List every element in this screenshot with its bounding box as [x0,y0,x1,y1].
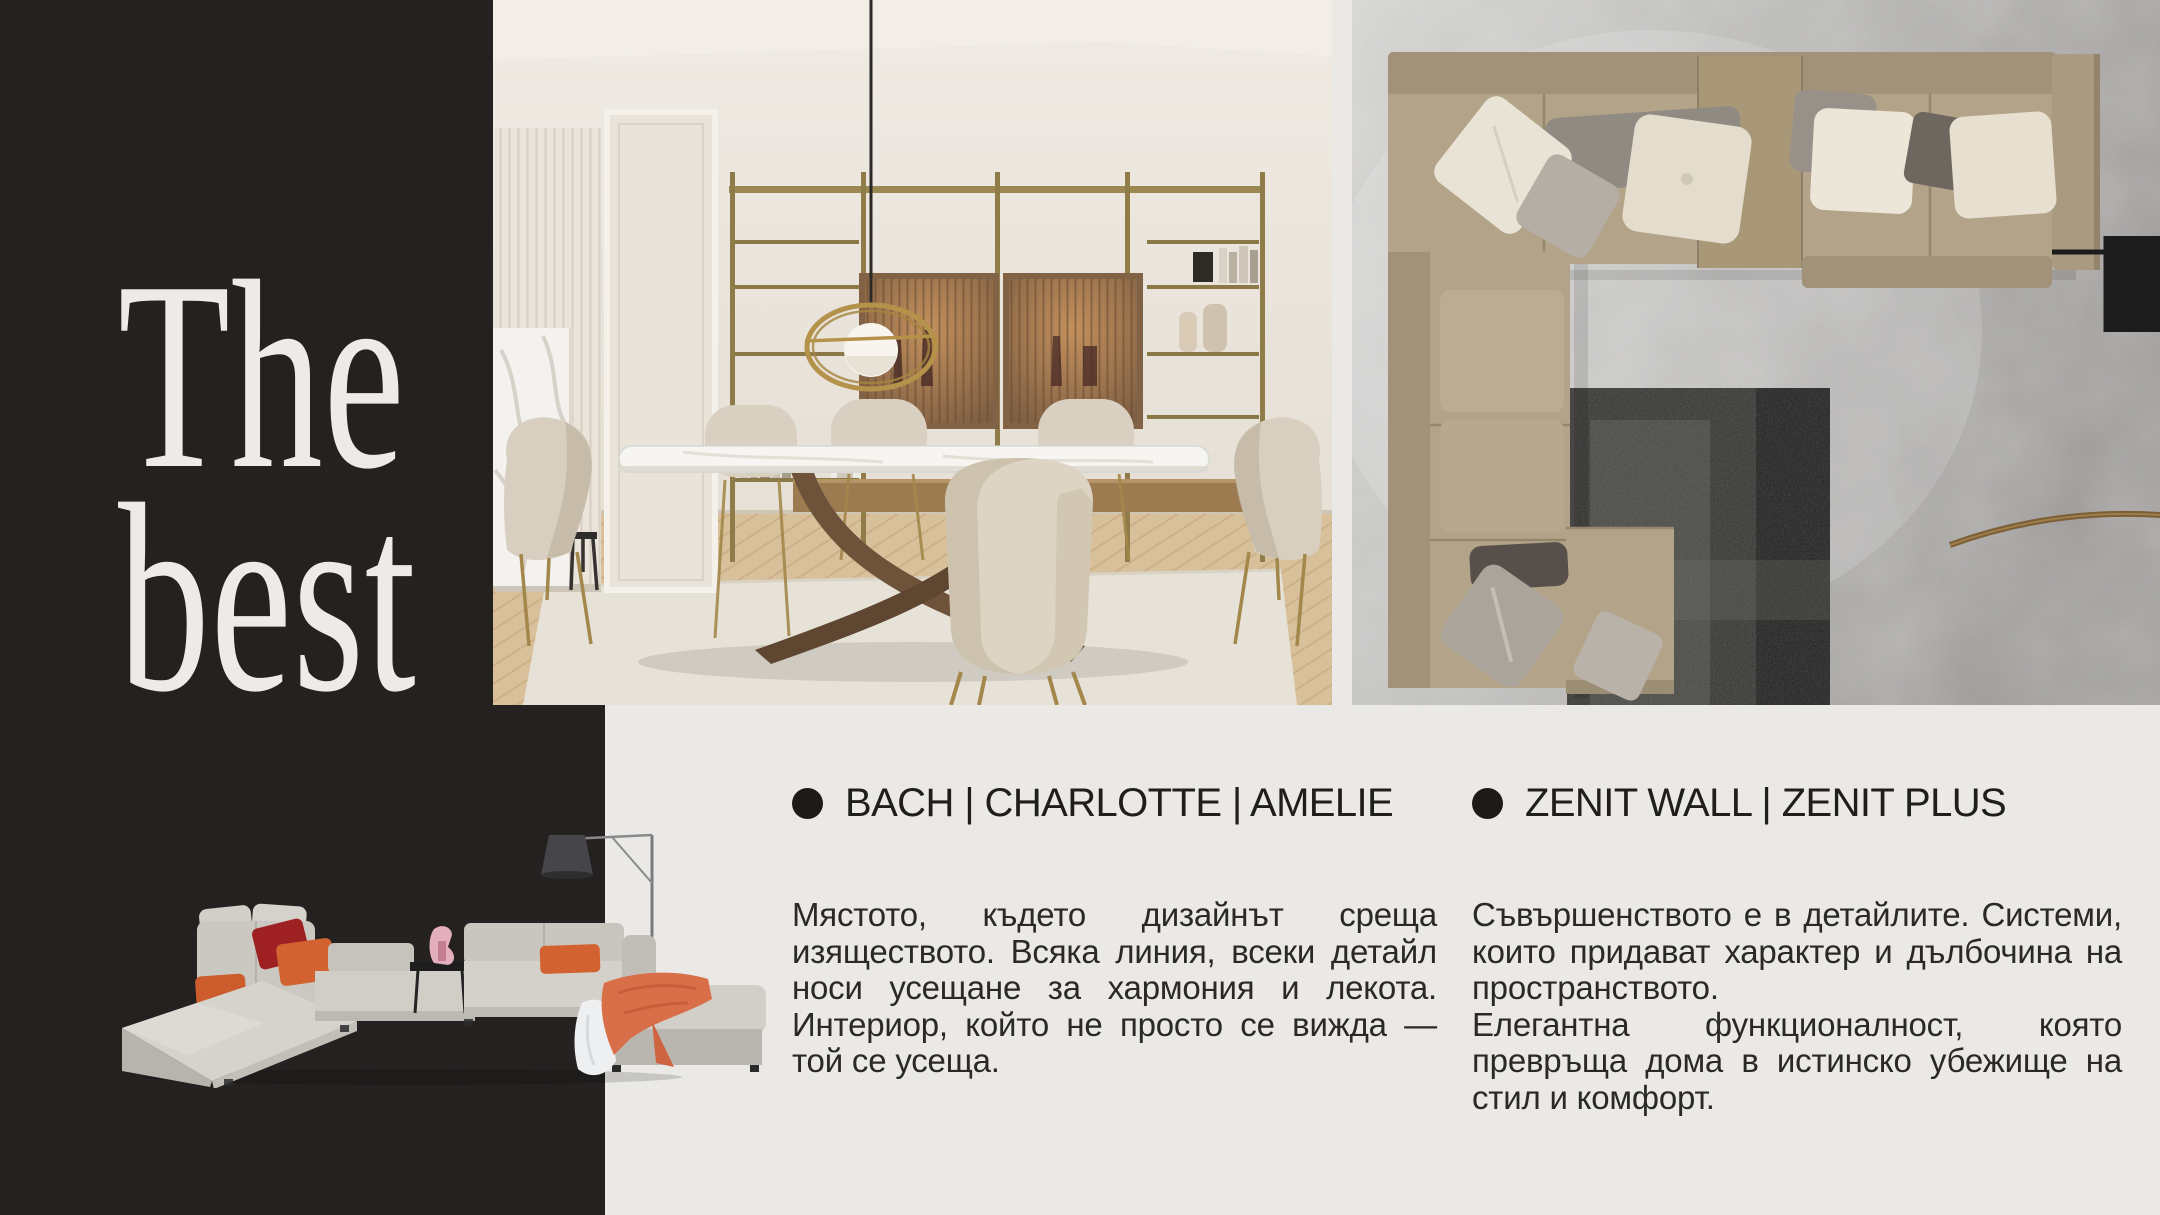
section-body-bach: Мястото, където дизайнът срещаизяществот… [792,897,1437,1080]
bullet-icon [1472,788,1503,819]
heading-label: BACH | CHARLOTTE | AMELIE [845,781,1393,825]
section-heading-bach: BACH | CHARLOTTE | AMELIE [792,781,1393,825]
overhead-sofa-photo [1352,0,2160,705]
orange-pillow-3 [540,944,601,974]
dining-room-photo [493,0,1332,705]
hero-title-line2: best [118,487,416,710]
section-heading-zenit: ZENIT WALL | ZENIT PLUS [1472,781,2006,825]
hero-title: The best [118,264,416,710]
section-body-zenit: Съвършенството е в детайлите. Системи,ко… [1472,897,2122,1117]
heading-label: ZENIT WALL | ZENIT PLUS [1525,781,2006,825]
bullet-icon [792,788,823,819]
presentation-slide: The best [0,0,2160,1215]
sofa-cutout-image [112,823,780,1088]
